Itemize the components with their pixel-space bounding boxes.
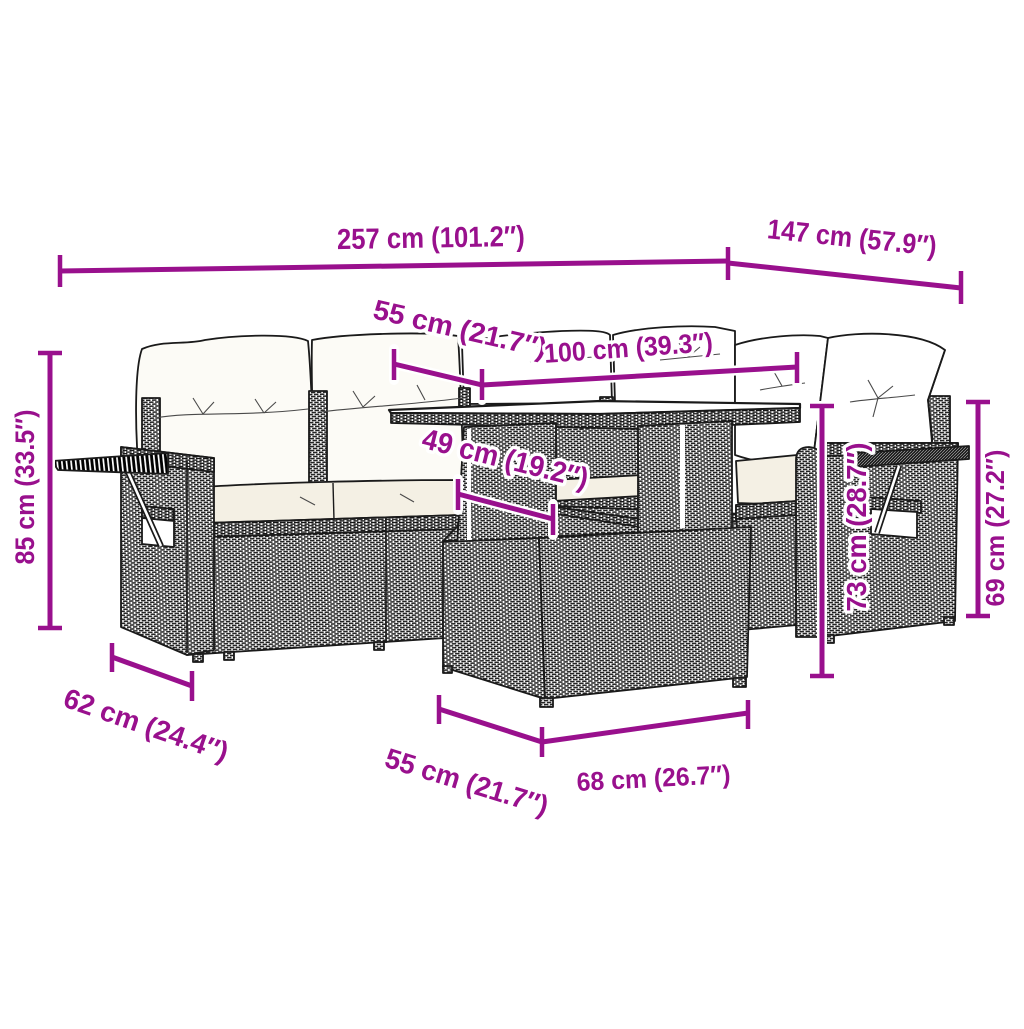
svg-text:69 cm (27.2″): 69 cm (27.2″) [982, 450, 1010, 607]
svg-text:85 cm (33.5″): 85 cm (33.5″) [9, 410, 40, 565]
svg-text:257 cm (101.2″): 257 cm (101.2″) [337, 219, 525, 255]
svg-text:73 cm (28.7″): 73 cm (28.7″) [841, 443, 872, 612]
